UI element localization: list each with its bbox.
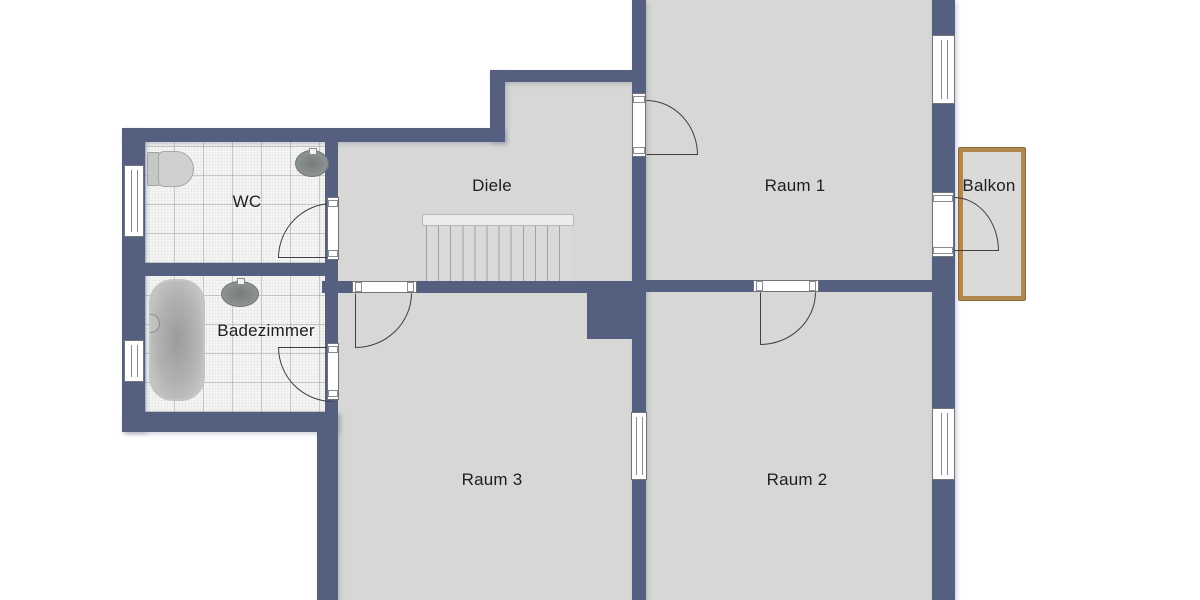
window-raum3-raum2-interior: [631, 412, 647, 480]
room-label-raum1: Raum 1: [765, 176, 826, 196]
toilet-icon: [158, 151, 194, 187]
door-wc-frame: [327, 197, 339, 260]
badezimmer-sink-faucet-icon: [237, 278, 245, 285]
window-raum1-east: [932, 35, 955, 104]
door-raum3-frame: [352, 281, 417, 293]
door-balkon-frame: [932, 192, 954, 257]
door-badezimmer-frame: [327, 343, 339, 400]
window-badezimmer-west: [124, 340, 144, 382]
window-raum2-east: [932, 408, 955, 480]
wall-bath-block-bottom: [122, 412, 338, 432]
room-label-diele: Diele: [472, 176, 512, 196]
room-label-badezimmer: Badezimmer: [217, 321, 314, 341]
window-wc-west: [124, 165, 144, 237]
staircase-treads: [426, 226, 571, 281]
room-label-balkon: Balkon: [962, 176, 1015, 196]
floorplan: WC Badezimmer Diele Raum 1 Raum 2 Raum 3…: [0, 0, 1200, 600]
wall-top-diele: [490, 70, 632, 82]
room-label-raum2: Raum 2: [767, 470, 828, 490]
room-raum2-floor: [646, 292, 933, 600]
wall-wc-badezimmer-divider: [140, 263, 338, 276]
room-label-wc: WC: [233, 192, 262, 212]
room-label-raum3: Raum 3: [462, 470, 523, 490]
bathtub-icon: [149, 279, 205, 401]
staircase-landing-edge: [422, 214, 574, 226]
wc-sink-faucet-icon: [309, 148, 317, 155]
door-raum2-frame: [753, 280, 819, 292]
wall-chimney-block: [587, 293, 646, 339]
room-diele-floor-upper: [505, 82, 632, 142]
wall-outer-left-lower: [317, 412, 338, 600]
wall-top-bath-block: [122, 128, 505, 142]
door-raum1-frame: [632, 93, 646, 157]
